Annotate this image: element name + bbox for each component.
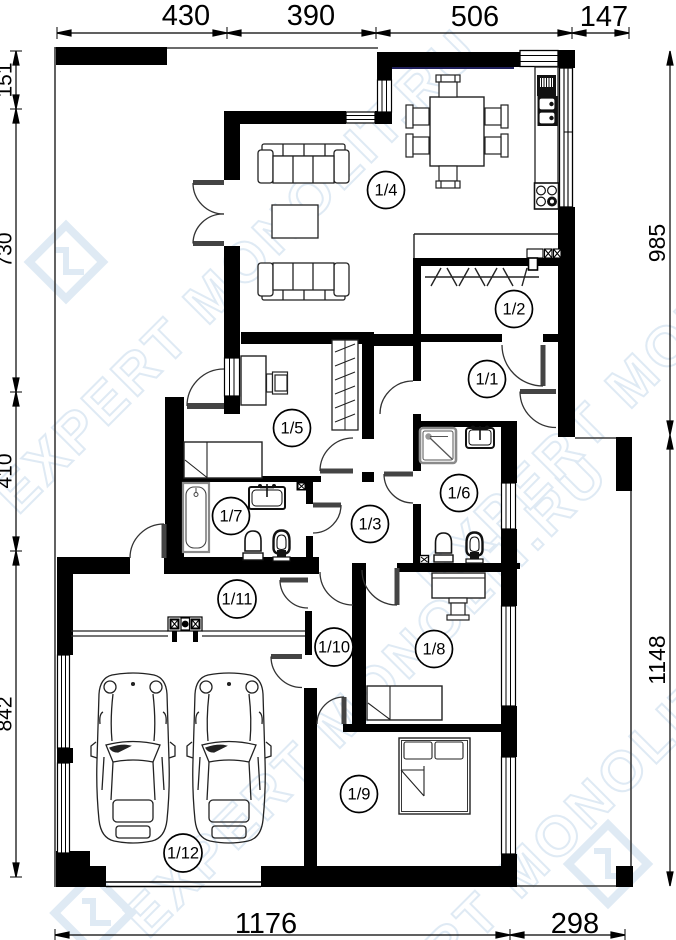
svg-text:1/11: 1/11 [222,591,253,609]
svg-text:1176: 1176 [235,908,297,940]
svg-text:410: 410 [0,453,17,488]
svg-text:1/10: 1/10 [318,639,350,657]
svg-text:1/1: 1/1 [476,371,499,389]
svg-text:730: 730 [0,232,17,267]
svg-text:1/8: 1/8 [423,641,446,659]
svg-text:985: 985 [644,224,670,262]
svg-text:1/7: 1/7 [220,508,243,526]
svg-text:430: 430 [162,0,210,32]
svg-text:298: 298 [551,908,599,940]
svg-text:842: 842 [0,696,17,731]
svg-text:1/4: 1/4 [375,182,398,200]
svg-text:1148: 1148 [644,635,670,684]
svg-text:506: 506 [451,1,499,33]
svg-text:151: 151 [0,62,17,97]
svg-text:1/5: 1/5 [281,420,304,438]
svg-text:1/9: 1/9 [348,786,371,804]
svg-text:1/6: 1/6 [448,485,471,503]
svg-text:1/12: 1/12 [167,845,199,863]
svg-text:1/3: 1/3 [359,516,382,534]
svg-text:390: 390 [287,0,335,32]
svg-text:1/2: 1/2 [503,301,526,319]
svg-text:147: 147 [580,1,628,33]
